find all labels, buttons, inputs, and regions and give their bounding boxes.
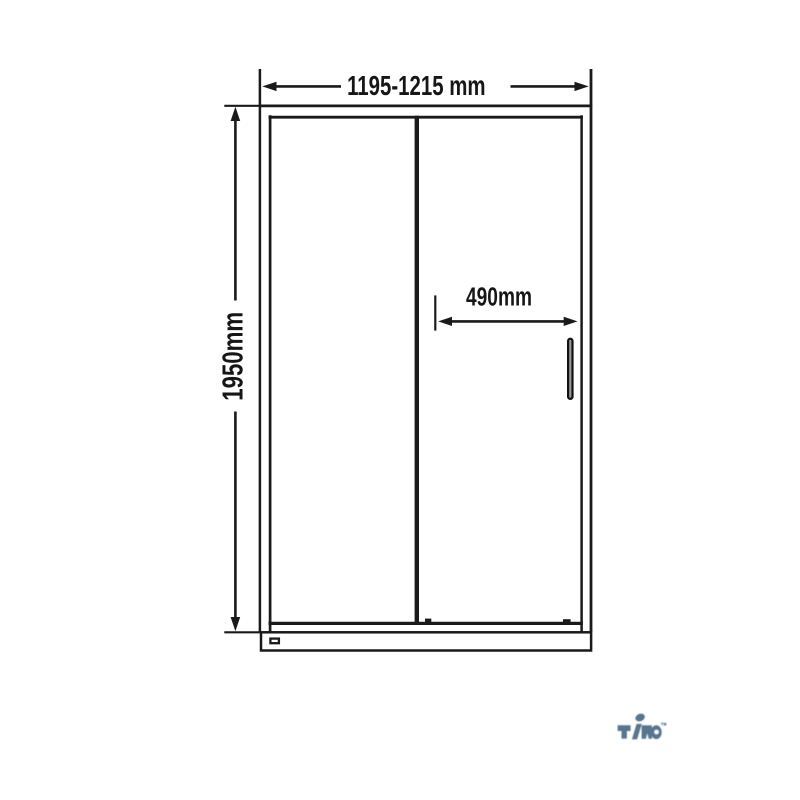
svg-text:1950mm: 1950mm (218, 312, 249, 401)
svg-text:490mm: 490mm (466, 283, 532, 311)
svg-text:1195-1215 mm: 1195-1215 mm (347, 71, 485, 102)
